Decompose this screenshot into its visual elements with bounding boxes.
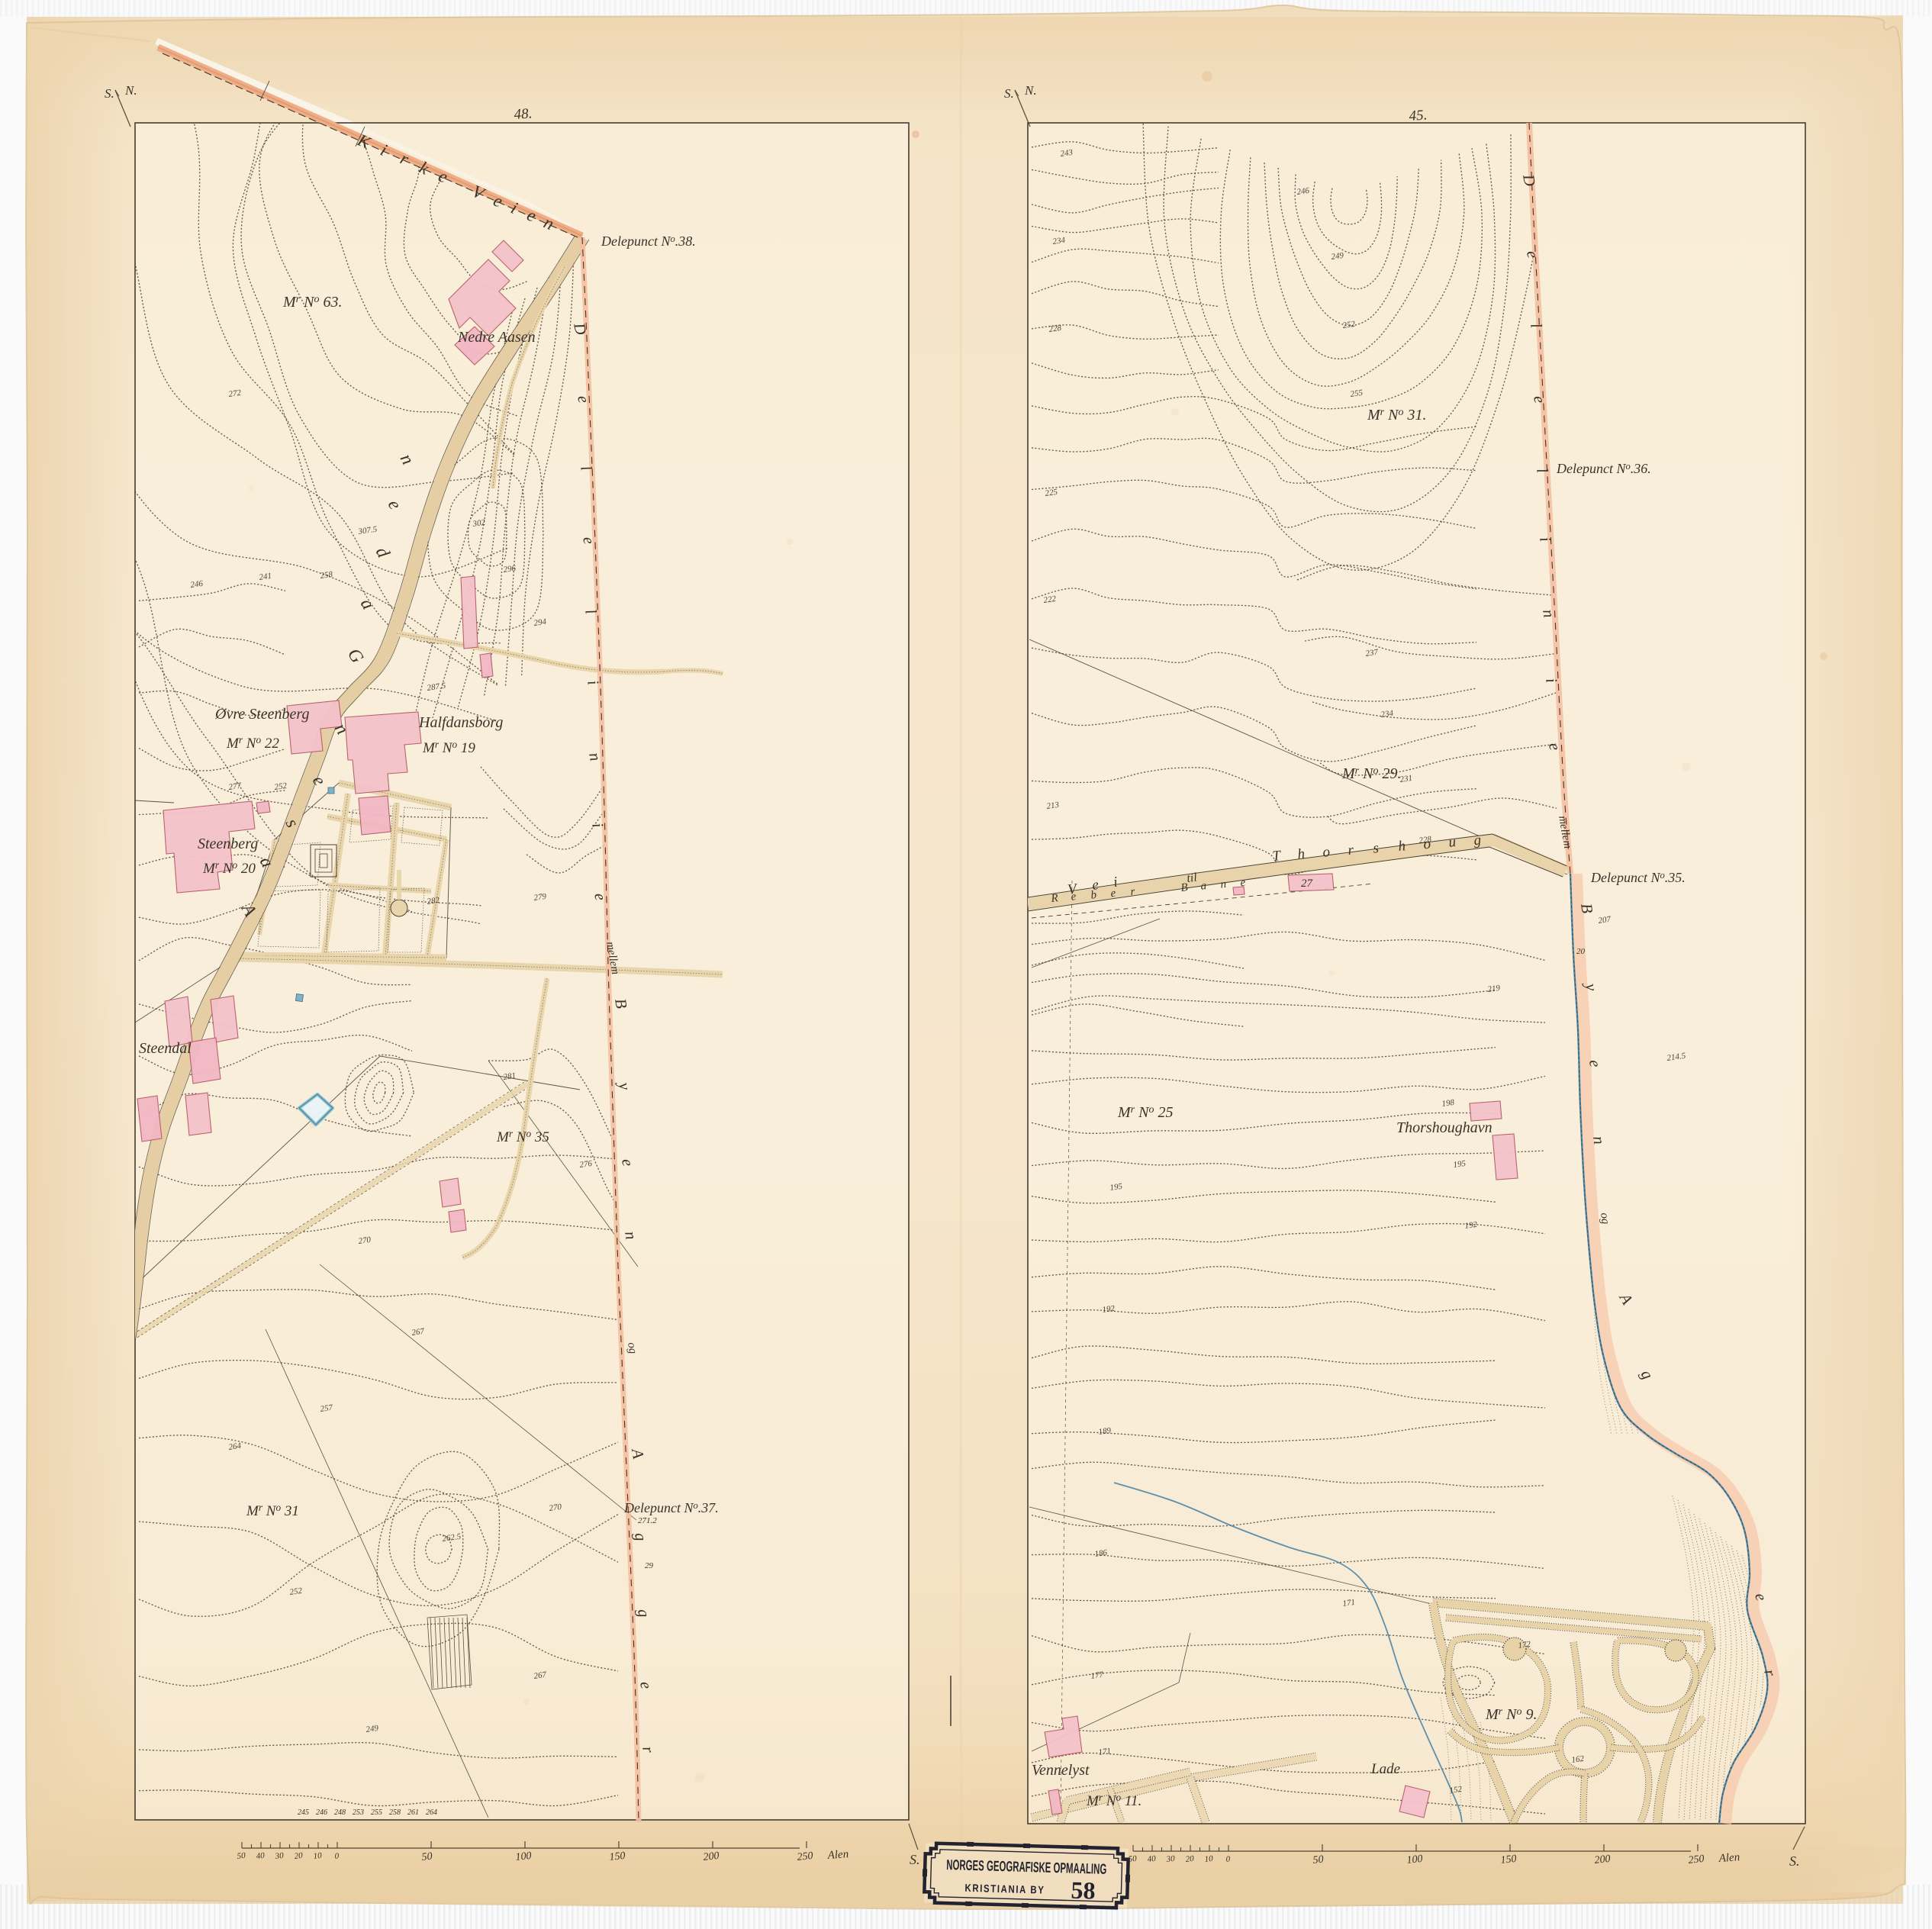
svg-text:Vennelyst: Vennelyst <box>1032 1762 1090 1779</box>
svg-text:281: 281 <box>503 1071 517 1082</box>
svg-text:248: 248 <box>334 1808 346 1817</box>
svg-text:198: 198 <box>1441 1098 1456 1109</box>
svg-text:h: h <box>1398 838 1406 855</box>
svg-text:Alen: Alen <box>1718 1851 1740 1865</box>
svg-text:Lade: Lade <box>1370 1761 1400 1777</box>
svg-text:177: 177 <box>1090 1670 1105 1681</box>
svg-text:222: 222 <box>1043 594 1058 605</box>
svg-text:S.: S. <box>1789 1853 1800 1869</box>
svg-text:228: 228 <box>1418 835 1433 845</box>
svg-text:20: 20 <box>294 1851 304 1861</box>
svg-text:S.: S. <box>105 86 114 101</box>
svg-text:152: 152 <box>1449 1785 1463 1795</box>
svg-text:267: 267 <box>411 1327 426 1338</box>
svg-text:40: 40 <box>256 1851 266 1861</box>
svg-text:30: 30 <box>1165 1854 1176 1864</box>
svg-text:Mr No 63.: Mr No 63. <box>282 294 342 311</box>
svg-text:Nedre Aasen: Nedre Aasen <box>457 329 536 346</box>
svg-text:189: 189 <box>1098 1426 1113 1437</box>
svg-text:27: 27 <box>1301 878 1314 890</box>
svg-text:252: 252 <box>274 781 288 792</box>
svg-text:257: 257 <box>320 1403 334 1414</box>
svg-text:til: til <box>1186 871 1198 885</box>
svg-text:Thorshoughavn: Thorshoughavn <box>1396 1119 1492 1136</box>
svg-text:231: 231 <box>1399 774 1413 784</box>
svg-text:50: 50 <box>237 1851 246 1861</box>
svg-text:og: og <box>1598 1212 1612 1225</box>
svg-text:250: 250 <box>1688 1853 1705 1866</box>
svg-text:279: 279 <box>533 892 548 903</box>
svg-text:Mr No 25: Mr No 25 <box>1117 1104 1173 1121</box>
svg-text:48.: 48. <box>514 105 533 123</box>
svg-text:171: 171 <box>1342 1598 1356 1609</box>
svg-text:KRISTIANIA BY: KRISTIANIA BY <box>964 1882 1045 1896</box>
svg-text:100: 100 <box>515 1850 532 1863</box>
svg-text:250: 250 <box>797 1850 813 1863</box>
svg-text:45.: 45. <box>1409 107 1428 124</box>
svg-text:207: 207 <box>1598 915 1612 926</box>
svg-text:162: 162 <box>1571 1754 1586 1765</box>
svg-text:234: 234 <box>1380 709 1395 720</box>
svg-text:195: 195 <box>1109 1182 1124 1193</box>
svg-text:Delepunct No.38.: Delepunct No.38. <box>601 233 696 249</box>
svg-text:267: 267 <box>533 1670 548 1681</box>
svg-text:246: 246 <box>1296 186 1311 197</box>
svg-text:Mr No 35: Mr No 35 <box>496 1128 549 1145</box>
svg-text:g: g <box>1473 832 1482 849</box>
svg-text:Mr No 20: Mr No 20 <box>202 859 256 877</box>
svg-text:252: 252 <box>1342 320 1357 330</box>
svg-text:225: 225 <box>1045 488 1059 498</box>
svg-text:213: 213 <box>1046 800 1061 811</box>
svg-text:253: 253 <box>353 1808 364 1817</box>
svg-text:192: 192 <box>1464 1220 1479 1231</box>
svg-text:192: 192 <box>1102 1304 1116 1315</box>
svg-text:Steendal: Steendal <box>139 1040 192 1057</box>
svg-text:302: 302 <box>472 518 486 529</box>
svg-text:Alen: Alen <box>826 1848 849 1862</box>
svg-text:100: 100 <box>1406 1853 1423 1866</box>
svg-text:258: 258 <box>320 570 334 581</box>
svg-text:264: 264 <box>426 1808 437 1817</box>
svg-text:29: 29 <box>645 1561 654 1570</box>
svg-text:Steenberg: Steenberg <box>198 836 258 852</box>
svg-text:40: 40 <box>1147 1854 1157 1864</box>
svg-text:Delepunct No.36.: Delepunct No.36. <box>1556 461 1651 476</box>
svg-text:u: u <box>1448 834 1457 851</box>
svg-text:195: 195 <box>1453 1159 1467 1170</box>
svg-text:243: 243 <box>1060 148 1074 159</box>
svg-text:N.: N. <box>124 83 137 98</box>
svg-text:B: B <box>1180 881 1189 894</box>
svg-text:219: 219 <box>1487 984 1502 994</box>
svg-text:249: 249 <box>1331 251 1345 262</box>
svg-text:Delepunct No.37.: Delepunct No.37. <box>623 1500 719 1515</box>
svg-text:255: 255 <box>1350 388 1364 399</box>
svg-text:200: 200 <box>703 1850 720 1863</box>
svg-text:296: 296 <box>503 564 517 575</box>
svg-text:h: h <box>1297 846 1306 863</box>
svg-text:20: 20 <box>1185 1854 1195 1864</box>
svg-text:228: 228 <box>1048 324 1063 334</box>
svg-text:246: 246 <box>190 579 204 590</box>
svg-text:237: 237 <box>1365 648 1380 659</box>
svg-text:S.: S. <box>910 1852 920 1867</box>
svg-text:261: 261 <box>407 1808 419 1817</box>
svg-text:200: 200 <box>1594 1853 1611 1866</box>
svg-text:272: 272 <box>228 388 243 399</box>
svg-text:150: 150 <box>609 1850 626 1863</box>
svg-text:Øvre Steenberg: Øvre Steenberg <box>214 706 309 723</box>
svg-text:255: 255 <box>371 1808 382 1817</box>
svg-text:264: 264 <box>228 1441 243 1452</box>
svg-text:Mr No 29.: Mr No 29. <box>1341 765 1401 782</box>
svg-text:150: 150 <box>1500 1853 1517 1866</box>
svg-text:R: R <box>1050 892 1059 905</box>
svg-text:270: 270 <box>549 1502 563 1513</box>
svg-text:172: 172 <box>1518 1640 1532 1650</box>
svg-text:10: 10 <box>313 1851 323 1861</box>
svg-text:270: 270 <box>358 1235 372 1246</box>
svg-text:294: 294 <box>533 617 548 628</box>
svg-text:10: 10 <box>1204 1854 1214 1864</box>
svg-text:171: 171 <box>1098 1747 1112 1757</box>
svg-text:30: 30 <box>274 1851 285 1861</box>
svg-text:276: 276 <box>579 1159 594 1170</box>
svg-text:252: 252 <box>289 1586 304 1597</box>
svg-text:186: 186 <box>1094 1548 1109 1559</box>
svg-text:249: 249 <box>365 1724 380 1734</box>
svg-text:N.: N. <box>1024 83 1037 98</box>
svg-text:58: 58 <box>1071 1876 1096 1905</box>
svg-text:271.2: 271.2 <box>638 1516 657 1525</box>
svg-text:Halfdansborg: Halfdansborg <box>418 714 503 731</box>
svg-text:o: o <box>1322 844 1331 861</box>
svg-text:Mr No 22: Mr No 22 <box>226 734 279 752</box>
svg-text:258: 258 <box>389 1808 401 1817</box>
svg-text:245: 245 <box>298 1808 309 1817</box>
svg-text:Mr No 19: Mr No 19 <box>422 739 475 756</box>
svg-text:234: 234 <box>1052 236 1067 246</box>
svg-text:Delepunct No.35.: Delepunct No.35. <box>1590 870 1686 885</box>
svg-text:50: 50 <box>421 1851 433 1863</box>
svg-text:277: 277 <box>228 781 243 792</box>
svg-text:50: 50 <box>1312 1854 1324 1866</box>
svg-text:S.: S. <box>1004 86 1014 101</box>
svg-text:20: 20 <box>1576 947 1586 956</box>
svg-text:282: 282 <box>427 896 441 907</box>
svg-text:Mr No 11.: Mr No 11. <box>1086 1792 1141 1809</box>
svg-text:Mr No 31: Mr No 31 <box>246 1502 299 1519</box>
svg-text:241: 241 <box>259 572 272 582</box>
svg-text:246: 246 <box>316 1808 327 1817</box>
svg-text:Mr No 9.: Mr No 9. <box>1485 1706 1537 1723</box>
svg-text:Mr No 31.: Mr No 31. <box>1367 407 1426 423</box>
